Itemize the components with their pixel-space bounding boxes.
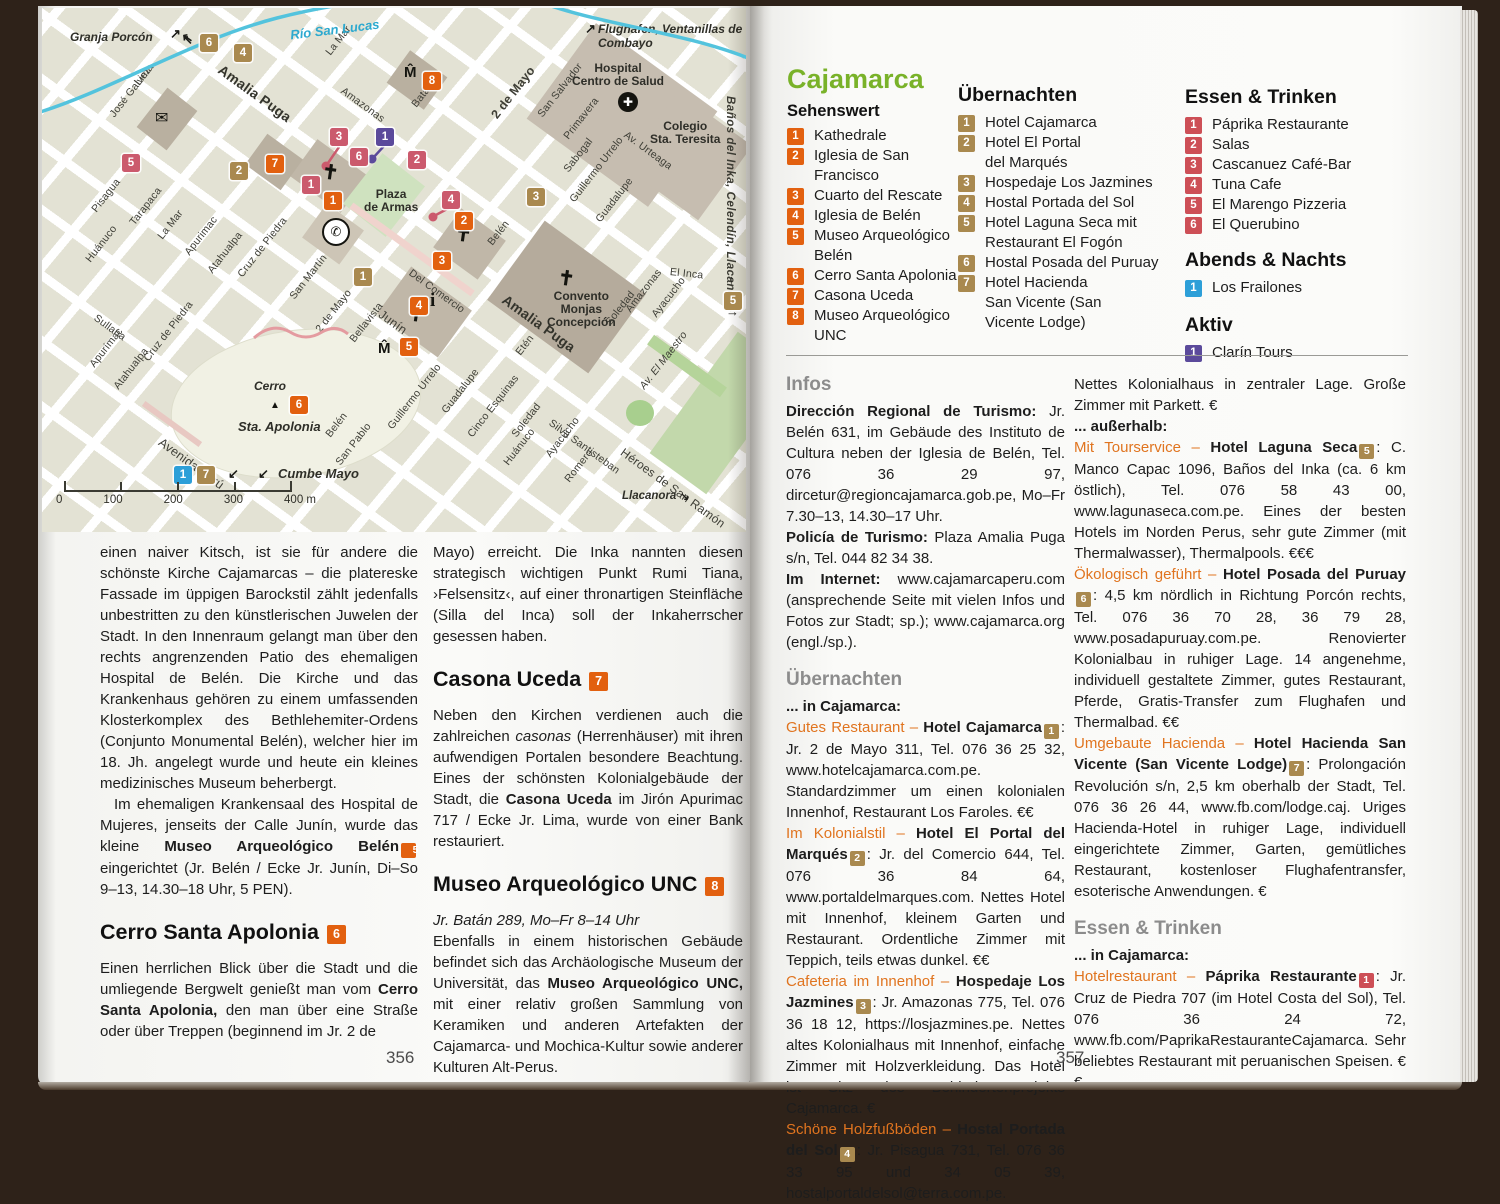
legend-number-box: 5 — [787, 228, 804, 245]
street-label: 2 de Mayo — [313, 287, 354, 334]
heading-number-box: 7 — [589, 672, 608, 691]
uebernachten-heading: Übernachten — [786, 669, 1065, 691]
legend-item: 3Cascanuez Café-Bar — [1185, 155, 1405, 175]
inline-number-box: 4 — [840, 1147, 855, 1162]
arrow-icon: ↖ — [182, 32, 193, 48]
map-marker-active-1: 1 — [376, 128, 394, 146]
legend-item: 3Cuarto del Rescate — [787, 186, 957, 206]
entry-lead: Ökologisch geführt – — [1074, 566, 1223, 583]
hotel-entry: Ökologisch geführt – Hotel Posada del Pu… — [1074, 564, 1406, 733]
infos-heading: Infos — [786, 374, 1065, 396]
right-page-column-1: Infos Dirección Regional de Turismo: Jr.… — [786, 374, 1065, 1204]
legend-number-box: 5 — [1185, 197, 1202, 214]
legend-label: Hostal Posada del Puruay — [985, 254, 1158, 271]
street-label: Cruz de Piedra — [141, 299, 195, 364]
legend-number-box: 2 — [1185, 137, 1202, 154]
legend-item: 6Cerro Santa Apolonia — [787, 266, 957, 286]
legend-label: Salas — [1212, 136, 1250, 153]
right-page-column-2: Nettes Kolonialhaus in zentraler Lage. G… — [1074, 374, 1406, 1093]
edge-label-granja-porcon: Granja Porcón — [70, 30, 153, 44]
heading-text: Cerro Santa Apolonia — [100, 920, 319, 944]
subheading: ... in Cajamarca: — [786, 696, 1065, 717]
peak-icon: ▲ — [270, 400, 280, 411]
section-heading-casona: Casona Uceda 7 — [433, 667, 743, 692]
place-label-hospital: Hospital Centro de Salud — [572, 62, 664, 88]
phone-icon: ✆ — [322, 218, 350, 246]
heading-number-box: 6 — [327, 925, 346, 944]
legend-label: Cascanuez Café-Bar — [1212, 156, 1351, 173]
heading-text: Casona Uceda — [433, 667, 581, 691]
text-run: mit einer relativ großen Sammlung von Ke… — [433, 996, 743, 1076]
map-marker-food-2: 2 — [408, 151, 426, 169]
legend-item: 2Hotel El Portaldel Marqués — [958, 133, 1183, 173]
paragraph: Policía de Turismo: Plaza Amalia Puga s/… — [786, 527, 1065, 569]
book-spread: Lima José Galvez Amalia Puga La Mar Amaz… — [0, 0, 1500, 1099]
map-marker-food-5: 5 — [122, 154, 140, 172]
legend-label: El Querubino — [1212, 216, 1300, 233]
legend-item: 1Clarín Tours — [1185, 343, 1405, 363]
arrow-icon: ↙ — [258, 466, 269, 482]
divider-rule — [786, 355, 1408, 356]
entry-name: Hotel Laguna Seca — [1210, 439, 1357, 456]
edge-label-line: Combayo — [598, 36, 653, 50]
legend-label: Hotel El Portal — [985, 134, 1081, 151]
legend-sehenswert: Sehenswert 1Kathedrale 2Iglesia de San F… — [787, 102, 957, 346]
hotel-entry: Cafeteria im Innenhof – Hospedaje Los Ja… — [786, 971, 1065, 1119]
church-icon: ✝ — [556, 265, 576, 292]
legend-label: Cuarto del Rescate — [814, 187, 942, 204]
legend-item: 2Iglesia de San Francisco — [787, 146, 957, 186]
legend-label: Museo Arqueológico — [814, 227, 950, 244]
place-line: Hospital — [594, 61, 641, 75]
legend-number-box: 2 — [958, 135, 975, 152]
arrow-icon: ↗ — [585, 21, 596, 37]
inline-number-box: 6 — [1076, 592, 1091, 607]
legend-number-box: 4 — [1185, 177, 1202, 194]
legend-item: 6El Querubino — [1185, 215, 1405, 235]
place-line: Concepción — [547, 315, 616, 329]
legend-number-box: 3 — [1185, 157, 1202, 174]
map-marker-hotel-2: 2 — [230, 162, 248, 180]
legend-label: Hotel Laguna Seca mit — [985, 214, 1137, 231]
heading-number-box: 8 — [705, 877, 724, 896]
legend-number-box: 7 — [787, 288, 804, 305]
scale-tick: 200 — [164, 494, 183, 506]
street-label: San Martín — [287, 252, 329, 301]
restaurant-entry: Hotelrestaurant – Páprika Restaurante1: … — [1074, 966, 1406, 1093]
entry-text: : Prolongación Revolución s/n, 2,5 km ob… — [1074, 756, 1406, 900]
legend-heading: Übernachten — [958, 84, 1183, 107]
street-label: Guadalupe — [439, 366, 481, 415]
legend-item: 5Hotel Laguna Seca mitRestaurant El Fogó… — [958, 213, 1183, 253]
entry-lead: Schöne Holzfußböden – — [786, 1121, 957, 1138]
text-run-bold: Museo Arqueológico UNC, — [547, 975, 743, 992]
legend-item: 5Museo ArqueológicoBelén — [787, 226, 957, 266]
museum-icon: M̂ — [404, 64, 417, 81]
entry-lead: Mit Tourservice – — [1074, 439, 1210, 456]
hotel-entry: Schöne Holzfußböden – Hostal Portada del… — [786, 1119, 1065, 1204]
text-run-bold: Dirección Regional de Turismo: — [786, 403, 1049, 420]
entry-lead: Cafeteria im Innenhof – — [786, 973, 956, 990]
inline-number-box: 3 — [856, 999, 871, 1014]
entry-text: : 4,5 km nördlich in Richtung Porcón rec… — [1074, 587, 1406, 731]
place-label-plaza-de-armas: Plaza de Armas — [364, 188, 418, 214]
legend-heading: Essen & Trinken — [1185, 86, 1405, 109]
place-line: Colegio — [663, 119, 707, 133]
text-run-bold: Policía de Turismo: — [786, 529, 934, 546]
street-label: Amazonas — [338, 85, 386, 125]
scale-tick: 100 — [103, 494, 122, 506]
legend-item: 8Museo Arqueológico UNC — [787, 306, 957, 346]
edge-label-cumbe-mayo: Cumbe Mayo — [278, 466, 359, 481]
left-page: Lima José Galvez Amalia Puga La Mar Amaz… — [38, 6, 750, 1086]
page-edge-stack — [1460, 10, 1478, 1082]
edge-label-line: Flughafen, Ventanillas de Otuzco, — [598, 22, 746, 36]
paragraph: einen naiver Kitsch, ist sie für andere … — [100, 542, 418, 794]
legend-item: 7Hotel HaciendaSan Vicente (SanVicente L… — [958, 273, 1183, 333]
legend-number-box: 2 — [787, 148, 804, 165]
legend-heading: Abends & Nachts — [1185, 249, 1405, 272]
map-marker-sight-4: 4 — [410, 297, 428, 315]
marker-stem — [434, 208, 449, 216]
legend-label: Hostal Portada del Sol — [985, 194, 1134, 211]
map-marker-food-1: 1 — [302, 176, 320, 194]
inline-number-box: 5 — [401, 843, 416, 858]
paragraph: Dirección Regional de Turismo: Jr. Belén… — [786, 401, 1065, 527]
legend-label: San Vicente (San — [985, 294, 1101, 311]
text-run-bold: Casona Uceda — [506, 791, 612, 808]
legend-number-box: 1 — [787, 128, 804, 145]
map-marker-sight-8: 8 — [423, 72, 441, 90]
paragraph: Nettes Kolonialhaus in zentraler Lage. G… — [1074, 374, 1406, 416]
legend-label: Hotel Hacienda — [985, 274, 1088, 291]
entry-text: : Jr. del Comercio 644, Tel. 076 36 84 6… — [786, 846, 1065, 969]
hotel-entry: Umgebaute Hacienda – Hotel Hacienda San … — [1074, 733, 1406, 902]
left-page-column-2: Mayo) erreicht. Die Inka nannten diesen … — [433, 542, 743, 1078]
inline-number-box: 1 — [1044, 724, 1059, 739]
subheading: ... außerhalb: — [1074, 416, 1406, 437]
entry-name: Hotel Posada del Puruay — [1223, 566, 1406, 583]
map-marker-sight-7: 7 — [266, 155, 284, 173]
entry-text: : C. Manco Capac 1096, Baños del Inka (c… — [1074, 439, 1406, 562]
legend-label: Iglesia de Belén — [814, 207, 921, 224]
legend-item: 5El Marengo Pizzeria — [1185, 195, 1405, 215]
street-label: Romero — [562, 447, 595, 485]
legend-number-box: 3 — [958, 175, 975, 192]
legend-label: Hospedaje Los Jazmines — [985, 174, 1153, 191]
street-label: Etén — [513, 333, 536, 358]
legend-number-box: 7 — [958, 275, 975, 292]
legend-number-box: 6 — [958, 255, 975, 272]
street-label: Pisagua — [89, 176, 123, 214]
legend-item: 4Tuna Cafe — [1185, 175, 1405, 195]
map-marker-food-4: 4 — [442, 191, 460, 209]
legend-label: Cerro Santa Apolonia — [814, 267, 957, 284]
map-park-circle — [626, 400, 654, 426]
place-line: Centro de Salud — [572, 74, 664, 88]
scale-tick: 400 m — [284, 494, 316, 506]
arrow-icon: ↑ — [728, 272, 735, 287]
inline-number-box: 7 — [1289, 761, 1304, 776]
paragraph: Ebenfalls in einem historischen Gebäude … — [433, 931, 743, 1078]
scale-tick: 300 — [224, 494, 243, 506]
paragraph: Im Internet: www.cajamarcaperu.com (ansp… — [786, 569, 1065, 653]
legend-item: 1Los Frailones — [1185, 278, 1405, 298]
legend-number-box: 6 — [1185, 217, 1202, 234]
subheading: ... in Cajamarca: — [1074, 945, 1406, 966]
place-label-convento: Convento Monjas Concepción — [547, 290, 616, 329]
legend-label: Tuna Cafe — [1212, 176, 1282, 193]
entry-text: : Jr. Cruz de Piedra 707 (im Hotel Costa… — [1074, 968, 1406, 1091]
inline-number-box: 5 — [1359, 444, 1374, 459]
opening-hours-line: Jr. Batán 289, Mo–Fr 8–14 Uhr — [433, 910, 743, 931]
legend-label: Iglesia de San Francisco — [814, 147, 909, 184]
legend-label: Vicente Lodge) — [985, 314, 1086, 331]
post-office-icon: ✉ — [155, 108, 168, 128]
legend-essen: Essen & Trinken 1Páprika Restaurante 2Sa… — [1185, 86, 1405, 363]
map-marker-sight-1: 1 — [324, 192, 342, 210]
legend-item: 6Hostal Posada del Puruay — [958, 253, 1183, 273]
legend-item: 1Páprika Restaurante — [1185, 115, 1405, 135]
place-line: de Armas — [364, 200, 418, 214]
legend-uebernachten: Übernachten 1Hotel Cajamarca 2Hotel El P… — [958, 84, 1183, 333]
paragraph: Mayo) erreicht. Die Inka nannten diesen … — [433, 542, 743, 647]
place-line: Monjas — [561, 302, 602, 316]
arrow-icon: ↗ — [170, 26, 181, 42]
map-marker-sight-3: 3 — [433, 252, 451, 270]
hospital-icon: ✚ — [618, 92, 638, 112]
entry-name: Hotel Cajamarca — [923, 719, 1042, 736]
left-page-column-1: einen naiver Kitsch, ist sie für andere … — [100, 542, 418, 1042]
arrow-icon: ↘ — [680, 490, 689, 503]
legend-label: Hotel Cajamarca — [985, 114, 1097, 131]
place-line: Sta. Teresita — [650, 132, 720, 146]
legend-item: 2Salas — [1185, 135, 1405, 155]
legend-label: Kathedrale — [814, 127, 887, 144]
marker-dot — [429, 213, 438, 222]
hotel-entry: Mit Tourservice – Hotel Laguna Seca5: C.… — [1074, 437, 1406, 564]
arrow-icon: ↙ — [228, 466, 239, 482]
text-run: Einen herrlichen Blick über die Stadt un… — [100, 960, 418, 998]
heading-text: Museo Arqueológico UNC — [433, 872, 697, 896]
street-label: Amalia Puga — [215, 62, 294, 126]
chapter-title: Cajamarca — [787, 64, 924, 95]
legend-number-box: 5 — [958, 215, 975, 232]
tourist-info-icon: i — [430, 290, 435, 312]
legend-label: Belén — [814, 247, 852, 264]
legend-number-box: 1 — [958, 115, 975, 132]
map-marker-hotel-6: 6 — [200, 34, 218, 52]
map-scale-labels: 0 100 200 300 400 m — [56, 494, 316, 506]
legend-heading: Sehenswert — [787, 102, 957, 121]
edge-label-flughafen: Flughafen, Ventanillas de Otuzco,Combayo — [598, 22, 746, 50]
place-label-colegio: Colegio Sta. Teresita — [650, 120, 720, 146]
inline-number-box: 2 — [850, 851, 865, 866]
street-label: Tarapaca — [127, 185, 164, 228]
text-run-bold: Museo Arqueológico Belén — [164, 838, 399, 855]
edge-label-llacanora: Llacanora — [622, 490, 676, 502]
legend-number-box: 1 — [1185, 117, 1202, 134]
scale-tick: 0 — [56, 494, 62, 506]
section-heading-museo-unc: Museo Arqueológico UNC 8 — [433, 872, 743, 897]
museum-icon: M̂ — [378, 340, 391, 357]
entry-lead: Im Kolonialstil – — [786, 825, 916, 842]
entry-lead: Hotelrestaurant – — [1074, 968, 1206, 985]
street-label: José Galvez — [107, 65, 153, 120]
legend-number-box: 4 — [958, 195, 975, 212]
place-label-sta-apolonia: Sta. Apolonia — [238, 420, 321, 433]
map-marker-sight-5: 5 — [400, 338, 418, 356]
arrow-icon: → — [726, 304, 739, 319]
place-line: Convento — [554, 289, 609, 303]
legend-number-box: 6 — [787, 268, 804, 285]
section-heading-cerro: Cerro Santa Apolonia 6 — [100, 920, 418, 945]
legend-item: 1Hotel Cajamarca — [958, 113, 1183, 133]
page-number-left: 356 — [386, 1048, 414, 1068]
legend-label: Casona Uceda — [814, 287, 913, 304]
paragraph: Neben den Kirchen verdienen auch die zah… — [433, 705, 743, 852]
church-icon: ✝ — [320, 159, 340, 186]
legend-item: 7Casona Uceda — [787, 286, 957, 306]
street-label: Apurimac — [182, 214, 220, 258]
legend-number-box: 1 — [1185, 280, 1202, 297]
legend-item: 3Hospedaje Los Jazmines — [958, 173, 1183, 193]
place-line: Sta. Apolonia — [238, 419, 321, 434]
map-marker-hotel-1: 1 — [354, 268, 372, 286]
city-map-cajamarca: Lima José Galvez Amalia Puga La Mar Amaz… — [42, 8, 746, 532]
page-number-right: 357 — [1056, 1048, 1084, 1068]
legend-label: Los Frailones — [1212, 279, 1302, 296]
right-page: Cajamarca Sehenswert 1Kathedrale 2Iglesi… — [750, 6, 1462, 1086]
paragraph: Einen herrlichen Blick über die Stadt un… — [100, 958, 418, 1042]
text-run: Jr. Belén 631, im Gebäude des Instituto … — [786, 403, 1065, 525]
map-marker-food-6: 6 — [350, 148, 368, 166]
legend-label: Páprika Restaurante — [1212, 116, 1349, 133]
place-label-cerro: Cerro — [254, 380, 286, 393]
inline-number-box: 1 — [1359, 973, 1374, 988]
map-scale-bar — [64, 482, 292, 492]
entry-lead: Gutes Restaurant – — [786, 719, 923, 736]
street-label: Huánuco — [83, 223, 119, 265]
text-run-italic: casonas — [515, 728, 571, 745]
legend-label: Museo Arqueológico UNC — [814, 307, 950, 344]
text-run: eingerichtet (Jr. Belén / Ecke Jr. Junín… — [100, 860, 418, 898]
legend-label: Clarín Tours — [1212, 344, 1293, 361]
legend-number-box: 8 — [787, 308, 804, 325]
legend-item: 1Kathedrale — [787, 126, 957, 146]
legend-label: El Marengo Pizzeria — [1212, 196, 1346, 213]
map-marker-hotel-3: 3 — [527, 188, 545, 206]
paragraph: Im ehemaligen Krankensaal des Hospital d… — [100, 794, 418, 900]
legend-heading: Aktiv — [1185, 314, 1405, 337]
street-label: La Mar — [155, 208, 185, 242]
hotel-entry: Im Kolonialstil – Hotel El Portal del Ma… — [786, 823, 1065, 971]
hotel-entry: Gutes Restaurant – Hotel Cajamarca1: Jr.… — [786, 717, 1065, 823]
book-bottom-edge — [38, 1082, 1462, 1090]
essen-heading: Essen & Trinken — [1074, 918, 1406, 940]
legend-number-box: 3 — [787, 188, 804, 205]
map-marker-sight-6: 6 — [290, 396, 308, 414]
map-marker-food-3: 3 — [330, 128, 348, 146]
legend-number-box: 4 — [787, 208, 804, 225]
legend-number-box: 1 — [1185, 345, 1202, 362]
entry-lead: Umgebaute Hacienda – — [1074, 735, 1254, 752]
place-line: Plaza — [376, 187, 407, 201]
place-line: Cerro — [254, 379, 286, 393]
legend-item: 4Iglesia de Belén — [787, 206, 957, 226]
legend-label: Restaurant El Fogón — [985, 234, 1123, 251]
map-marker-hotel-4: 4 — [234, 44, 252, 62]
text-run-bold: Im Internet: — [786, 571, 897, 588]
legend-item: 4Hostal Portada del Sol — [958, 193, 1183, 213]
legend-label: del Marqués — [985, 154, 1068, 171]
entry-name: Páprika Restaurante — [1206, 968, 1357, 985]
map-marker-sight-2: 2 — [455, 212, 473, 230]
street-label: Cruz de Piedra — [235, 215, 289, 280]
